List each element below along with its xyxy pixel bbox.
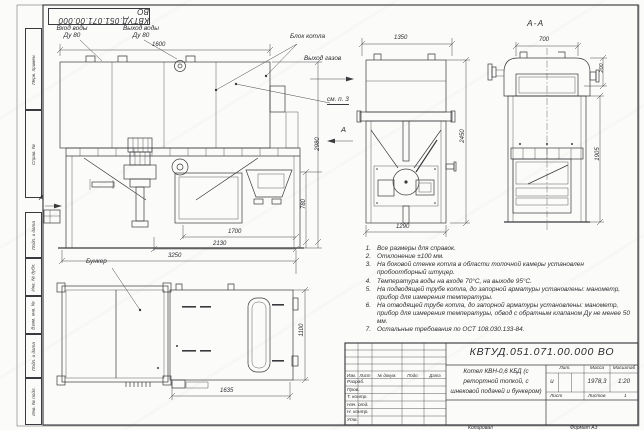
copied-label: Копировал [468,425,493,430]
col-izm: Изм. [345,373,358,378]
section-aa-dimensions [513,42,607,225]
sheet-label: Лист [550,394,562,399]
margin-col-vzam-inv: Взам. инв. № [25,296,42,334]
note-number: 2. [356,253,377,261]
water-inlet-line1: Вход воды [48,25,96,32]
section-aa-view [488,48,599,230]
note-number: 5. [356,286,377,302]
note-number: 7. [356,326,377,334]
bunker-label: Бункер [86,258,107,265]
title-name-line1: Котел КВН-0,6 КБД (с [447,367,545,377]
dim-1905: 1905 [595,139,601,169]
dim-200: 200 [599,53,605,83]
margin-label: Взам. инв. № [31,301,36,329]
front-dimensions [57,44,322,274]
side-view [357,54,456,223]
section-aa-title: А-А [527,18,544,28]
side-dimensions [359,38,470,237]
note-item: 4.Температура воды на входе 70°С, на вых… [356,278,632,286]
note-item: 1.Все размеры для справок. [356,245,632,253]
title-designation: КВТУД.051.071.00.000 ВО [448,346,636,358]
col-list: Лист [358,373,372,378]
sheets-label: Листов [588,394,605,399]
margin-col-inv-podl: Инв. № подл. [25,378,42,425]
sheets-value: 1 [624,394,627,399]
water-inlet-label: Вход воды Ду 80 [48,25,96,40]
title-name-line2: ретортной топкой, с [447,377,545,387]
water-outlet-label: Выход воды Ду 80 [114,25,168,40]
title-name-line3: шнековой подачей и бункером) [447,387,545,397]
dim-700: 700 [539,37,549,43]
front-leaders [45,40,354,208]
row-razrab: Разраб. [347,380,364,385]
top-view [57,283,298,388]
note-text: На боковой стенке котла в области топочн… [377,261,632,277]
water-outlet-line2: Ду 80 [114,32,168,39]
col-data: Дата [424,373,446,378]
margin-label: Перв. примен. [31,54,36,85]
note-item: 6.На отводящей трубе котла, до запорной … [356,302,632,326]
dim-2130: 2130 [213,241,226,247]
dim-1600: 1600 [152,42,165,48]
note-text: На подводящей трубе котла, до запорной а… [377,286,632,302]
margin-label: Справ. № [31,144,36,165]
col-podp: Подп. [402,373,424,378]
front-view [44,56,304,248]
title-name: Котел КВН-0,6 КБД (с ретортной топкой, с… [447,367,545,396]
margin-col-sprav: Справ. № [25,110,42,198]
note-item: 3.На боковой стенке котла в области топо… [356,261,632,277]
dim-2980: 2980 [315,129,321,159]
row-nkontr: Н. контр. [347,410,369,415]
note-text: Все размеры для справок. [377,245,632,253]
section-arrow-a-right: А [341,126,346,135]
see-note-label: см. п. 3 [327,96,349,105]
scale-label: Масштаб [610,366,638,371]
margin-label: Инв. № дубл. [31,263,36,291]
lit-value: и [546,378,558,385]
top-mirrored-stamp: КВТУД.051.071.00.000 ВО [48,8,150,25]
dim-1290: 1290 [396,224,409,230]
row-prov: Пров. [347,388,360,393]
margin-label: Инв. № подл. [31,387,36,416]
note-item: 5.На подводящей трубе котла, до запорной… [356,286,632,302]
margin-label: Подп. и дата [31,221,36,250]
dim-1350: 1350 [394,35,407,41]
note-number: 3. [356,261,377,277]
lit-label: Лит. [546,366,584,371]
dim-2450: 2450 [460,121,466,151]
section-arrow-a-left: А [39,195,44,203]
margin-col-inv-dubl: Инв. № дубл. [25,258,42,296]
row-nachotd: Нач. отд. [347,403,369,408]
margin-label: Подп. и дата [31,342,36,371]
water-outlet-line1: Выход воды [114,25,168,32]
mass-value: 1978,3 [584,378,610,385]
technical-notes: 1.Все размеры для справок. 2.Отклонение … [356,245,632,334]
dim-780: 780 [301,189,307,219]
dim-1635: 1635 [220,388,233,394]
margin-col-podp-data-1: Подп. и дата [25,212,42,258]
note-number: 4. [356,278,377,286]
note-text: На отводящей трубе котла, до запорной ар… [377,302,632,326]
dim-1100: 1100 [299,315,305,345]
note-text: Остальные требования по ОСТ 108.030.133-… [377,326,632,334]
drawing-sheet: КВТУД.051.071.00.000 ВО Перв. примен. Сп… [0,0,644,430]
dim-3250: 3250 [168,253,181,259]
note-number: 6. [356,302,377,326]
scale-value: 1:20 [610,378,638,385]
dim-1700: 1700 [228,229,241,235]
note-item: 7.Остальные требования по ОСТ 108.030.13… [356,326,632,334]
row-utv: Утв. [347,418,358,423]
mass-label: Масса [584,366,610,371]
row-tkontr: Т. контр. [347,395,368,400]
frame [17,5,639,426]
col-doc: № докум. [372,373,402,378]
note-number: 1. [356,245,377,253]
gas-outlet-label: Выход газов [304,55,341,62]
margin-col-perv-primen: Перв. примен. [25,28,42,110]
boiler-block-label: Блок котла [290,33,325,40]
water-inlet-line2: Ду 80 [48,32,96,39]
format-label: Формат А3 [570,425,597,430]
margin-col-podp-data-2: Подп. и дата [25,334,42,378]
note-text: Температура воды на входе 70°С, на выход… [377,278,632,286]
